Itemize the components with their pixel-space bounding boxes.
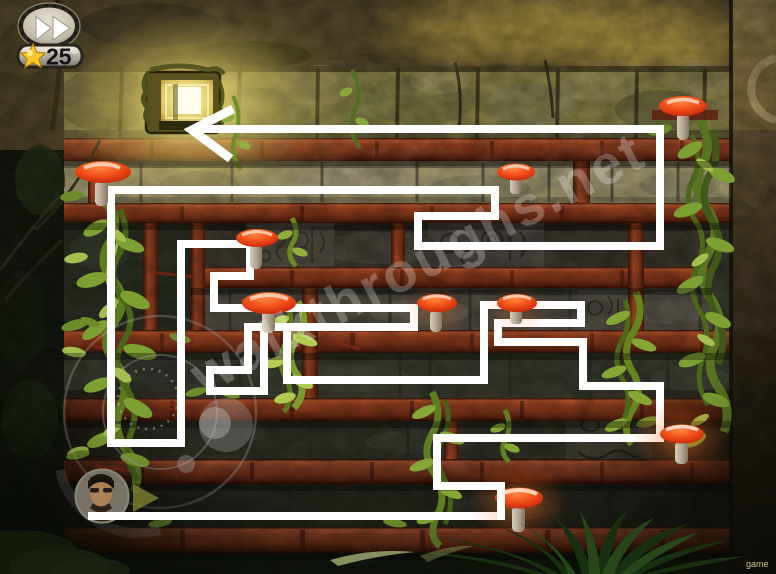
svg-text:game: game [746, 559, 769, 569]
svg-text:25: 25 [46, 44, 72, 70]
